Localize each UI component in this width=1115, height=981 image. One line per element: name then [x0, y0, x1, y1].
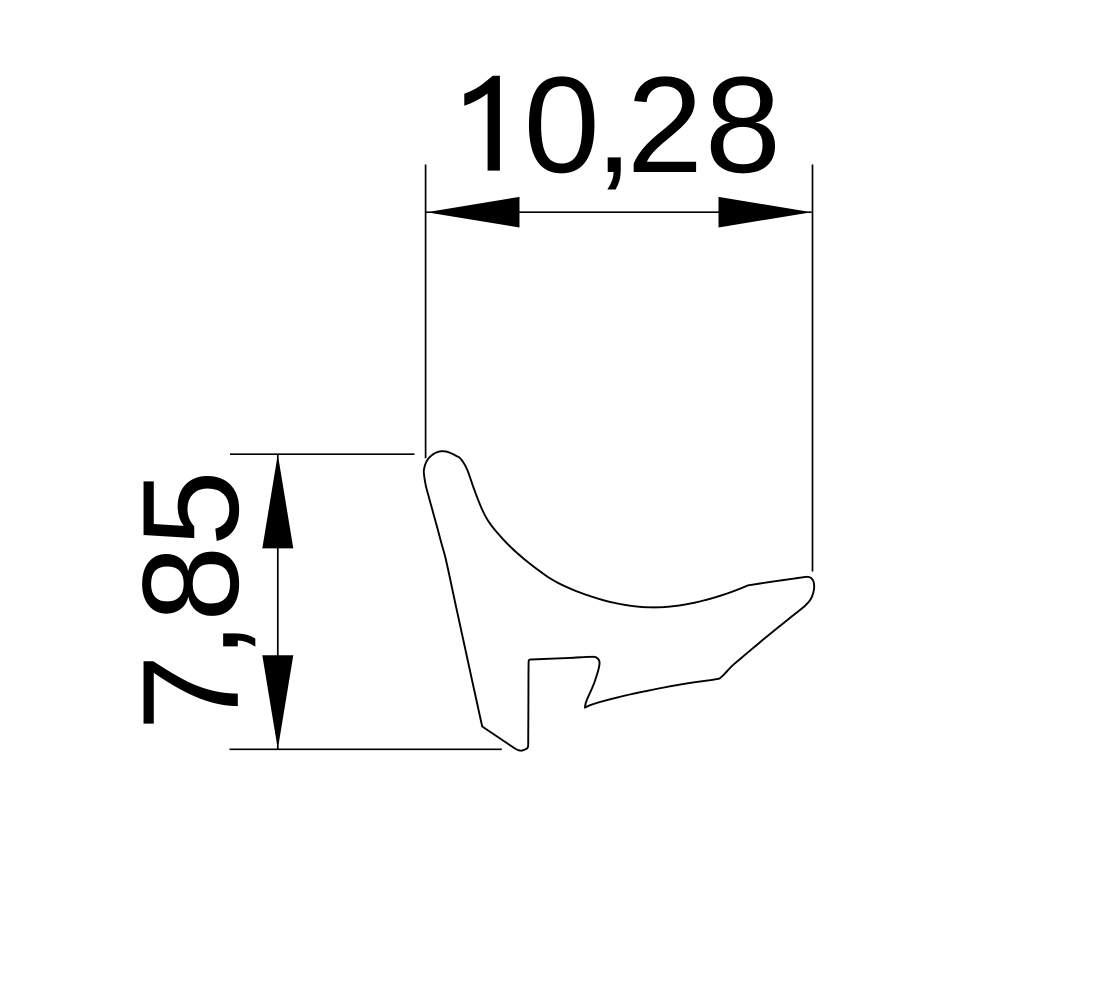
svg-text:0,28: 0,28	[524, 49, 781, 202]
svg-text:7,85: 7,85	[115, 470, 268, 730]
